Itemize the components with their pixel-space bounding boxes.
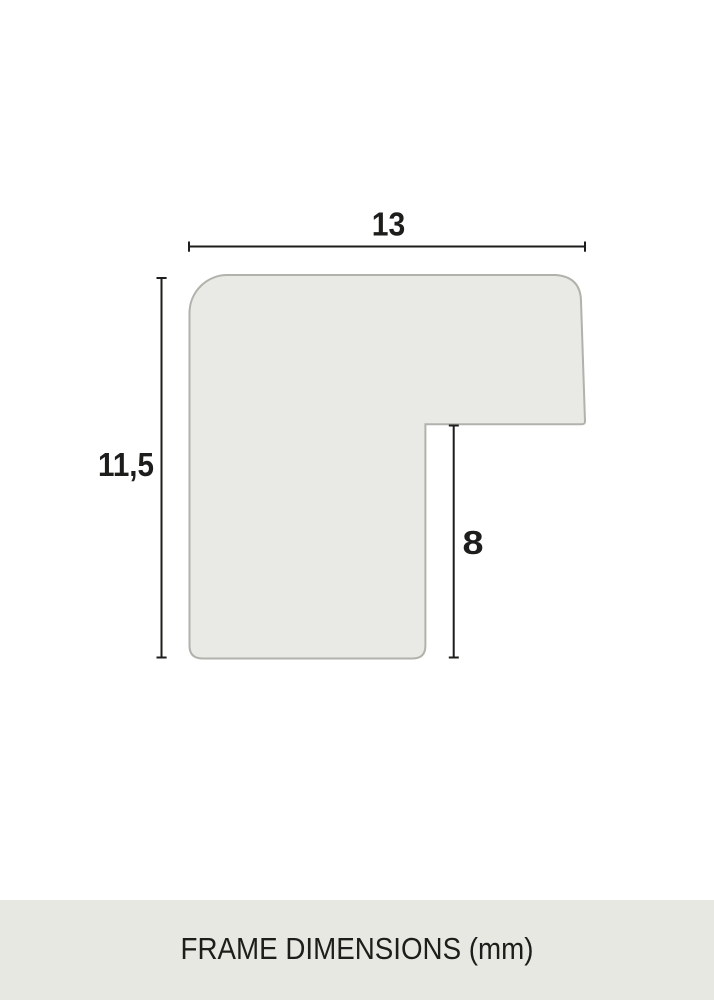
svg-text:11,5: 11,5	[98, 446, 154, 483]
svg-text:8: 8	[463, 524, 484, 561]
svg-text:FRAME DIMENSIONS (mm): FRAME DIMENSIONS (mm)	[181, 931, 534, 966]
svg-text:13: 13	[372, 206, 406, 243]
